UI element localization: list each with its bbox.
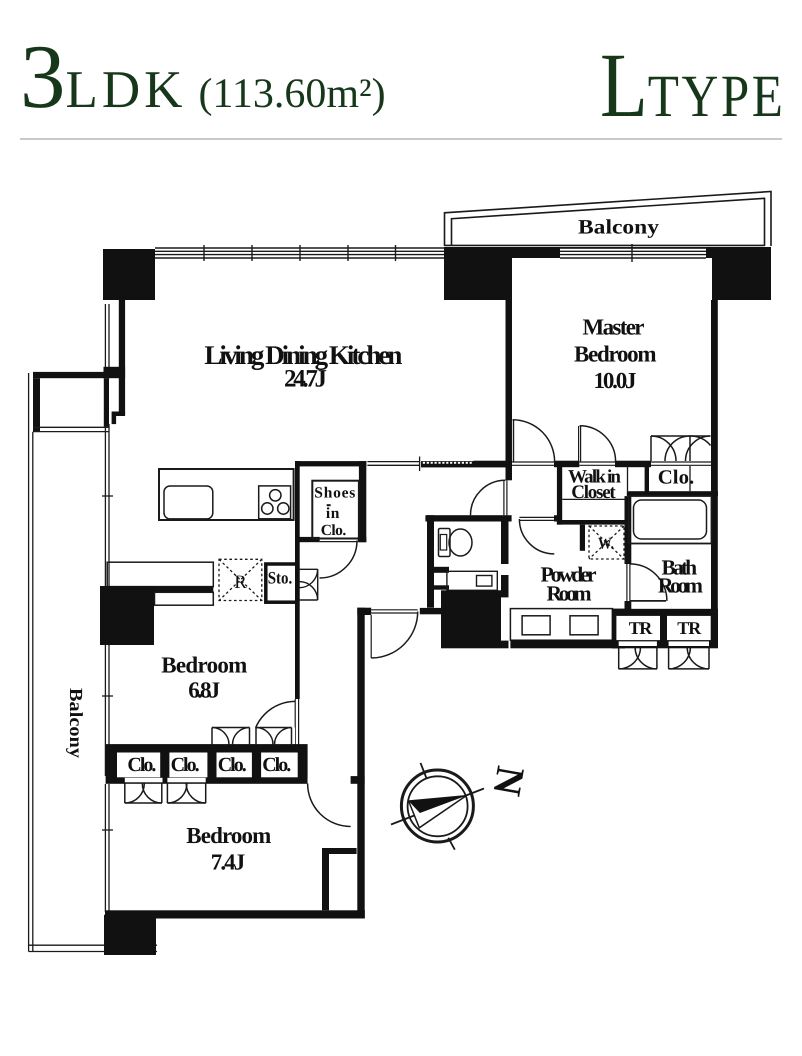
svg-text:W.: W. <box>598 534 614 553</box>
svg-text:in: in <box>326 505 340 522</box>
svg-text:Room: Room <box>547 582 592 606</box>
svg-text:R: R <box>234 572 247 593</box>
svg-text:Balcony: Balcony <box>65 688 85 759</box>
svg-text:Shoes: Shoes <box>314 485 355 502</box>
svg-text:7.4J: 7.4J <box>211 850 246 875</box>
svg-text:TR: TR <box>629 618 653 638</box>
svg-text:Closet: Closet <box>571 482 616 503</box>
svg-text:Bedroom: Bedroom <box>161 653 247 678</box>
svg-text:Bedroom: Bedroom <box>186 823 271 848</box>
svg-text:Clo.: Clo. <box>262 754 291 776</box>
svg-text:N: N <box>484 763 533 799</box>
svg-text:6.8J: 6.8J <box>188 677 220 702</box>
svg-text:Clo.: Clo. <box>218 754 247 776</box>
svg-text:Clo.: Clo. <box>658 466 695 488</box>
svg-text:Clo.: Clo. <box>127 754 156 776</box>
svg-text:Room: Room <box>658 573 703 597</box>
svg-text:Clo.: Clo. <box>321 522 347 539</box>
svg-text:TR: TR <box>677 618 702 638</box>
svg-text:Master: Master <box>583 315 645 340</box>
svg-text:24.7J: 24.7J <box>284 366 327 393</box>
svg-text:Clo.: Clo. <box>171 754 200 776</box>
svg-text:Sto.: Sto. <box>268 568 293 588</box>
svg-text:10.0J: 10.0J <box>594 368 637 393</box>
svg-text:Bedroom: Bedroom <box>574 342 657 367</box>
svg-text:Balcony: Balcony <box>578 217 660 239</box>
